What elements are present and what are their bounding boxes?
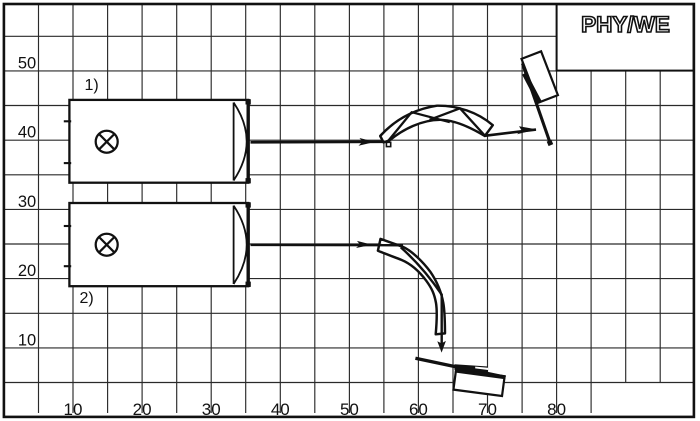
svg-text:50: 50 [18, 55, 36, 73]
svg-text:PHY/WE: PHY/WE [581, 12, 670, 37]
svg-text:40: 40 [18, 124, 36, 142]
svg-text:1): 1) [85, 77, 99, 94]
svg-text:10: 10 [18, 332, 36, 350]
svg-text:2): 2) [80, 290, 94, 307]
svg-text:30: 30 [18, 193, 36, 211]
svg-text:20: 20 [18, 262, 36, 280]
